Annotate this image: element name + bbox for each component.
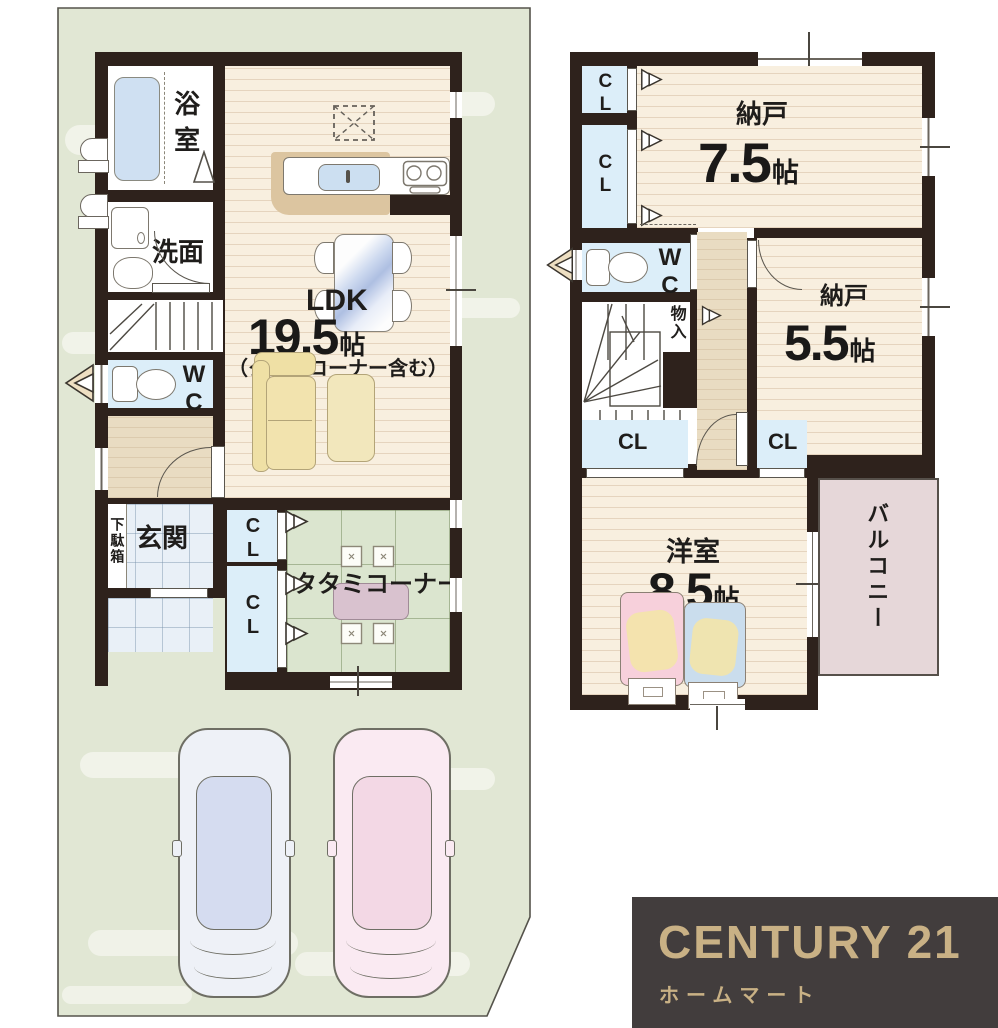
wc-label-2f: WC: [656, 244, 682, 300]
century21-logo-block: CENTURY 21 ホームマート: [632, 897, 998, 1028]
storage2-size-unit: 帖: [850, 338, 876, 364]
storage1-size-unit: 帖: [772, 160, 799, 187]
century21-brand-text: CENTURY 21: [658, 915, 962, 969]
wc-entry-arrow-icon-2f: [542, 244, 575, 286]
washing-machine-knob: [137, 232, 145, 244]
washroom-door-leaf: [152, 283, 210, 293]
window-tick: [446, 289, 476, 291]
shoe-cabinet-label: 下駄箱: [109, 517, 124, 565]
sliding-door-chevron-icon: [283, 508, 310, 535]
sofa-seat: [266, 376, 316, 470]
car-blue-cabin: [196, 776, 272, 930]
car-blue-hood-line: [190, 926, 276, 955]
sliding-door-chevron-icon: [700, 304, 723, 327]
staircase-1f: [108, 300, 223, 352]
closet-top-door: [627, 68, 637, 111]
tatami-cushion-icon: [372, 545, 395, 568]
bed-blue-blanket: [688, 617, 740, 678]
wc-entry-arrow-icon-1f: [60, 361, 96, 405]
car-pink-cabin: [352, 776, 432, 930]
ldk-size-unit: 帖: [339, 332, 365, 358]
closet-bottom-right-label: CL: [768, 430, 797, 454]
toilet-bowl-2f: [608, 252, 648, 283]
toilet-tank-2f: [586, 249, 610, 286]
window-tick: [716, 706, 718, 730]
car-blue-mirror-right: [285, 840, 295, 857]
wc-label-1f: WC: [180, 361, 206, 417]
parked-car-pink: [333, 728, 451, 998]
sofa-ottoman: [327, 374, 375, 462]
dining-chair: [392, 242, 412, 274]
closet-upper-label: CL: [242, 515, 264, 563]
tatami-corner-label: タタミコーナー: [293, 572, 461, 598]
storage1-label: 納戸: [736, 100, 788, 129]
bath-partition-line: [164, 72, 165, 184]
ldk-right-window-top: [450, 92, 462, 118]
toilet-bowl-1f: [136, 369, 176, 400]
tatami-right-window: [450, 578, 462, 612]
sliding-door-chevron-icon: [639, 67, 664, 92]
wc-window-1f: [95, 365, 108, 403]
car-pink-mirror-right: [445, 840, 455, 857]
entrance-label: 玄関: [136, 524, 188, 553]
sliding-door-chevron-icon: [639, 128, 664, 153]
storage1-size-value: 7.5: [698, 135, 770, 191]
bed-pink: [620, 592, 684, 686]
parked-car-blue: [178, 728, 291, 998]
floor1-wall-left-strip: [95, 598, 108, 686]
window-tick: [808, 32, 810, 66]
bed-pink-blanket: [625, 608, 680, 673]
dining-chair: [314, 242, 334, 274]
small-storage-label: 物入: [667, 305, 685, 341]
hall-window-1f: [95, 448, 108, 490]
car-pink-bumper-line: [350, 954, 432, 979]
window-tick: [357, 666, 359, 696]
ceiling-hatch-icon: [332, 104, 376, 142]
storage2-size-value: 5.5: [784, 318, 848, 368]
water-heater-base: [78, 160, 109, 173]
floorplan-canvas: 浴室 洗面 WC 下駄箱 玄関: [0, 0, 998, 1028]
ldk-right-window-low: [450, 500, 462, 528]
washroom-sink: [113, 257, 153, 289]
window-tick: [920, 306, 950, 308]
storage2-door-leaf: [747, 240, 757, 288]
tatami-cushion-icon: [340, 545, 363, 568]
closet-mid-label: CL: [594, 152, 615, 198]
storage2-label: 納戸: [820, 284, 868, 310]
dining-chair: [392, 290, 412, 322]
company-name-text: ホームマート: [659, 979, 820, 1008]
closet-mid-door: [627, 129, 637, 224]
closet-top-label: CL: [594, 71, 615, 117]
bath-corner-shelf-icon: [192, 150, 216, 184]
entrance-door-leaf: [150, 588, 208, 598]
stove-icon: [402, 160, 448, 194]
storage1-dashed-line: [640, 224, 696, 225]
tatami-bottom-window: [330, 676, 392, 688]
tatami-cushion-icon: [372, 622, 395, 645]
storage1-top-window: [758, 52, 862, 66]
storage2-size: 5.5 帖: [784, 318, 876, 368]
ldk-door-leaf: [211, 446, 225, 498]
water-heater-icon: [80, 194, 108, 218]
car-blue-mirror-left: [172, 840, 182, 857]
bathtub: [114, 77, 160, 181]
water-heater-icon: [80, 138, 108, 162]
car-pink-hood-line: [346, 926, 436, 955]
entrance-porch: [108, 598, 213, 652]
closet-bottom-right-doors: [759, 468, 805, 478]
toilet-tank-1f: [112, 366, 138, 402]
car-pink-mirror-left: [327, 840, 337, 857]
ldk-right-window-mid: [450, 236, 462, 346]
window-tick: [920, 146, 950, 148]
western-room-door-leaf: [736, 412, 748, 466]
closet-bottom-left-label: CL: [618, 430, 647, 454]
sliding-door-chevron-icon: [283, 620, 310, 647]
sliding-door-chevron-icon: [283, 570, 310, 597]
kitchen-side-wall: [390, 195, 462, 215]
balcony-label: バルコニー: [864, 502, 888, 632]
car-blue-bumper-line: [194, 954, 272, 979]
kitchen-faucet: [346, 170, 350, 183]
tatami-cushion-icon: [340, 622, 363, 645]
water-heater-base: [78, 216, 109, 229]
bed-blue: [684, 602, 746, 688]
closet-lower-label: CL: [242, 592, 264, 640]
sofa-seat-divider: [268, 420, 312, 421]
staircase-2f-upper: [582, 302, 663, 408]
storage1-size: 7.5 帖: [698, 135, 799, 191]
closet-bottom-left-doors: [586, 468, 684, 478]
bed-pink-headboard: [628, 678, 676, 705]
